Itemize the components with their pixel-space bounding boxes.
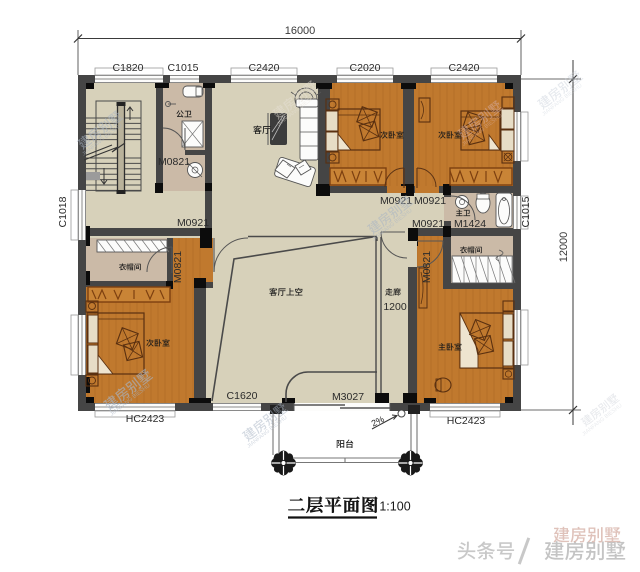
svg-text:1:100: 1:100 (379, 500, 410, 514)
svg-text:M1424: M1424 (454, 218, 486, 230)
svg-text:12000: 12000 (558, 232, 570, 263)
svg-text:C1015: C1015 (168, 62, 199, 74)
svg-text:C2420: C2420 (249, 62, 280, 74)
svg-text:HC2423: HC2423 (126, 413, 165, 425)
svg-text:1200: 1200 (383, 301, 407, 313)
svg-text:C1820: C1820 (113, 62, 144, 74)
svg-text:C1018: C1018 (57, 196, 69, 227)
svg-text:M0921: M0921 (412, 218, 444, 230)
svg-text:M0821: M0821 (172, 251, 184, 283)
svg-text:M0821: M0821 (158, 156, 190, 168)
svg-text:HC2423: HC2423 (447, 415, 486, 427)
svg-text:M0821: M0821 (421, 251, 433, 283)
svg-text:C2020: C2020 (350, 62, 381, 74)
svg-text:M3027: M3027 (332, 391, 364, 403)
svg-text:M0921: M0921 (414, 195, 446, 207)
svg-text:M0921: M0921 (177, 217, 209, 229)
svg-text:C1015: C1015 (520, 196, 532, 227)
svg-text:16000: 16000 (285, 25, 316, 37)
svg-text:C1620: C1620 (227, 390, 258, 402)
svg-text:C2420: C2420 (449, 62, 480, 74)
